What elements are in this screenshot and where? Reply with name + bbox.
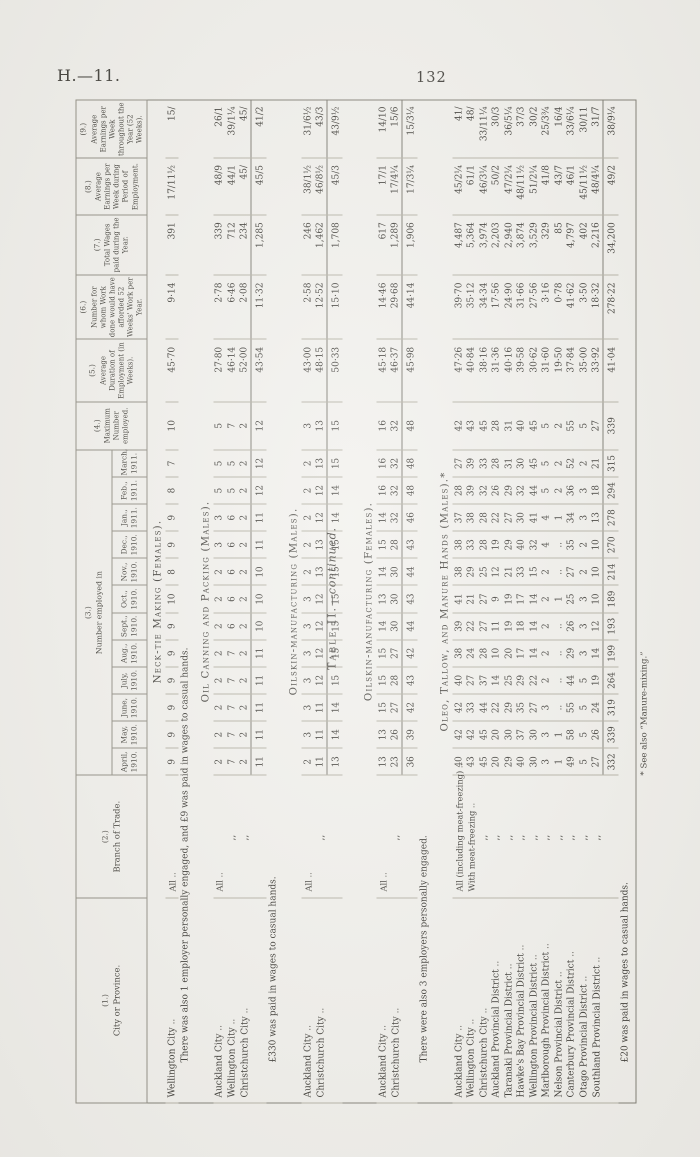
section-note: £20 was paid in wages to casual hands. <box>619 100 637 1103</box>
month-value: 193 <box>603 613 619 640</box>
avg-duration-value: 45·18 <box>377 339 390 401</box>
month-value: 2 <box>238 748 251 775</box>
month-value: 2 <box>540 558 553 585</box>
total-wages-value: 234 <box>238 215 251 275</box>
city-cell: Nelson Provincial District <box>553 898 566 1103</box>
month-value: 2 <box>238 721 251 748</box>
month-value: 3 <box>578 613 591 640</box>
avg-duration-value: 35·00 <box>578 339 591 401</box>
total-wages-value: 339 <box>213 215 226 275</box>
max-employed-value: 42 <box>453 402 466 450</box>
month-value: .. <box>553 667 566 694</box>
month-value: 21 <box>590 450 603 477</box>
avg-duration-value: 40·16 <box>503 339 516 401</box>
statistics-table: (1.) City or Province. (2.) Branch of Tr… <box>76 100 637 1104</box>
month-value: 13 <box>377 748 390 775</box>
month-value: 34 <box>565 504 578 531</box>
month-name: March, <box>119 451 129 475</box>
month-value: 2 <box>213 586 226 613</box>
earnings-period-value: 17/4¼ <box>389 158 402 214</box>
month-value: 3 <box>213 504 226 531</box>
branch-cell: ,, <box>490 775 503 898</box>
month-value: 19 <box>503 613 516 640</box>
earnings-year-value: 16/4 <box>553 100 566 158</box>
note-row: There was also 1 employer personally eng… <box>178 100 195 1103</box>
total-wages-value: 5,364 <box>465 215 478 275</box>
header-max-number: (4.) <box>92 403 102 448</box>
branch-cell: All <box>213 775 226 898</box>
month-value: 2 <box>540 586 553 613</box>
month-value: 33 <box>465 694 478 721</box>
earnings-year-value: 33/6¼ <box>565 100 578 158</box>
header-duration-number: (5.) <box>88 341 98 400</box>
month-year: 1910. <box>130 668 140 692</box>
total-wages-value: 1,906 <box>402 215 418 275</box>
month-value: 10 <box>251 613 267 640</box>
month-value: 2 <box>238 613 251 640</box>
weeks-work-number-value: 44·14 <box>402 275 418 339</box>
month-value: 29 <box>503 694 516 721</box>
month-value: 3 <box>302 613 315 640</box>
header-branch-number: (2.) <box>100 777 110 897</box>
month-value: 38 <box>465 504 478 531</box>
earnings-year-value: 30/2 <box>528 100 541 158</box>
table-title-main: Table II. <box>326 606 339 670</box>
month-value: 10 <box>251 586 267 613</box>
header-earnings-year-label: Average Earnings per Week throughout the… <box>90 102 145 157</box>
month-value: 3 <box>578 504 591 531</box>
month-value: 2 <box>540 667 553 694</box>
avg-duration-value: 27·80 <box>213 339 226 401</box>
month-value: .. <box>553 694 566 721</box>
month-value: 44 <box>402 558 418 585</box>
month-value: 2 <box>302 504 315 531</box>
max-employed-value: 40 <box>515 402 528 450</box>
month-value: 18 <box>515 613 528 640</box>
month-value: 27 <box>528 694 541 721</box>
weeks-work-number-value: 11·32 <box>251 275 267 339</box>
earnings-year-value: 38/9¼ <box>603 100 619 158</box>
avg-duration-value: 30·62 <box>528 339 541 401</box>
month-value: 29 <box>565 640 578 667</box>
note-row: £20 was paid in wages to casual hands. <box>619 100 637 1103</box>
header-city-number: (1.) <box>100 899 110 1101</box>
header-city-or-province: (1.) City or Province. <box>76 898 147 1103</box>
city-cell: Christchurch City <box>389 898 402 1103</box>
month-value: 2 <box>238 531 251 558</box>
branch-cell: ,, <box>389 775 402 898</box>
earnings-year-value: 14/10 <box>377 100 390 158</box>
month-name: Nov., <box>119 560 129 584</box>
month-value: .. <box>553 613 566 640</box>
totals-branch-cell <box>603 775 619 898</box>
branch-cell: ,, <box>540 775 553 898</box>
avg-duration-value: 41·04 <box>603 339 619 401</box>
table-row: Christchurch City,,232627282730303028323… <box>389 100 402 1103</box>
header-max-label: Maximum Number employed. <box>104 403 131 448</box>
month-value: 29 <box>503 531 516 558</box>
header-52weeks-number: (6.) <box>79 277 89 338</box>
month-value: 30 <box>528 721 541 748</box>
month-value: 199 <box>603 640 619 667</box>
earnings-period-value: 50/2 <box>490 158 503 214</box>
earnings-period-value: 51/2¼ <box>528 158 541 214</box>
max-employed-value: 16 <box>377 402 390 450</box>
month-value: 10 <box>590 531 603 558</box>
month-value: 9 <box>166 613 179 640</box>
month-value: 27 <box>478 586 491 613</box>
table-row: Taranaki Provincial District,,2930292520… <box>503 100 516 1103</box>
month-value: 29 <box>515 667 528 694</box>
month-value: 2 <box>238 558 251 585</box>
month-value: 40 <box>515 531 528 558</box>
weeks-work-number-value: 2·58 <box>302 275 315 339</box>
month-value: 4 <box>540 531 553 558</box>
section-note: £330 was paid in wages to casual hands. <box>267 100 284 1103</box>
totals-row: 3323393192641991931892142702782943153394… <box>603 100 619 1103</box>
branch-cell: With meat-freezing <box>465 775 478 898</box>
month-value: 315 <box>603 450 619 477</box>
month-value: 27 <box>478 613 491 640</box>
avg-duration-value: 47·26 <box>453 339 466 401</box>
earnings-period-value: 44/1 <box>226 158 239 214</box>
earnings-period-value: 45/2¼ <box>453 158 466 214</box>
table-row: Nelson Provincial District,,11........1.… <box>553 100 566 1103</box>
earnings-year-value: 36/5¼ <box>503 100 516 158</box>
table-row: Southland Provincial District,,272624191… <box>590 100 603 1103</box>
month-value: 10 <box>590 558 603 585</box>
month-value: 2 <box>213 667 226 694</box>
earnings-year-value: 33/11¼ <box>478 100 491 158</box>
month-value: 30 <box>389 558 402 585</box>
total-wages-value: 1,289 <box>389 215 402 275</box>
earnings-period-value: 48/4¼ <box>590 158 603 214</box>
city-cell: Christchurch City <box>478 898 491 1103</box>
month-value: 45 <box>478 721 491 748</box>
month-value: 45 <box>528 450 541 477</box>
month-value: 1 <box>553 748 566 775</box>
month-value: 43 <box>402 586 418 613</box>
month-value: 3 <box>540 721 553 748</box>
month-value: 21 <box>503 558 516 585</box>
max-employed-value: 339 <box>603 402 619 450</box>
month-value: 29 <box>503 748 516 775</box>
month-value: 28 <box>478 531 491 558</box>
month-value: 13 <box>377 586 390 613</box>
branch-cell: ,, <box>528 775 541 898</box>
section-title: Oilskin-manufacturing (Females). <box>359 100 377 1103</box>
month-value: 32 <box>389 450 402 477</box>
earnings-year-value: 31/7 <box>590 100 603 158</box>
avg-duration-value: 37·84 <box>565 339 578 401</box>
month-value: 20 <box>503 640 516 667</box>
max-employed-value: 48 <box>402 402 418 450</box>
month-value: 38 <box>453 640 466 667</box>
header-52weeks-label: Number for whom Work done would have aff… <box>90 277 145 338</box>
month-value: 39 <box>465 477 478 504</box>
header-duration-label: Average Duration of Employment (in Weeks… <box>99 341 135 400</box>
branch-cell: All <box>166 775 179 898</box>
month-header: Sept.,1910. <box>112 613 147 640</box>
earnings-year-value: 41/2 <box>251 100 267 158</box>
weeks-work-number-value: 18·32 <box>590 275 603 339</box>
month-value: 3 <box>302 667 315 694</box>
avg-duration-value: 31·36 <box>490 339 503 401</box>
earnings-year-value: 39/1¼ <box>226 100 239 158</box>
month-value: 270 <box>603 531 619 558</box>
month-value: 294 <box>603 477 619 504</box>
month-value: 44 <box>478 694 491 721</box>
month-value: 30 <box>503 721 516 748</box>
table-row: Otago Provincial District,,5555333223325… <box>578 100 591 1103</box>
month-value: 3 <box>578 586 591 613</box>
section-heading-row: Oleo, Tallow, and Manure Hands (Males).* <box>435 100 453 1103</box>
month-value: 332 <box>603 748 619 775</box>
month-value: 3 <box>302 640 315 667</box>
month-value: 19 <box>590 667 603 694</box>
max-employed-value: 2 <box>553 402 566 450</box>
month-value: 9 <box>166 531 179 558</box>
avg-duration-value: 45·70 <box>166 339 179 401</box>
month-value: 5 <box>213 450 226 477</box>
month-value: 27 <box>389 694 402 721</box>
max-employed-value: 5 <box>578 402 591 450</box>
month-value: 13 <box>377 721 390 748</box>
total-wages-value: 4,797 <box>565 215 578 275</box>
month-name: July, <box>119 668 129 692</box>
total-wages-value: 34,200 <box>603 215 619 275</box>
section-title: Neck-tie Making (Females). <box>147 100 166 1103</box>
month-value: 2 <box>213 613 226 640</box>
month-value: 2 <box>578 531 591 558</box>
table-row: Auckland CityAll131315151514131415141616… <box>377 100 390 1103</box>
month-value: 44 <box>565 667 578 694</box>
table-row: Marlborough Provincial District,,3332222… <box>540 100 553 1103</box>
earnings-year-value: 30/3 <box>490 100 503 158</box>
month-value: 11 <box>251 721 267 748</box>
month-value: 12 <box>251 477 267 504</box>
max-employed-value: 55 <box>565 402 578 450</box>
branch-cell: All (including meat-freezing) <box>453 775 466 898</box>
month-year: 1911. <box>130 479 140 503</box>
month-value: 27 <box>465 667 478 694</box>
weeks-work-number-value: 41·62 <box>565 275 578 339</box>
header-52-weeks-equivalent: (6.) Number for whom Work done would hav… <box>76 275 147 339</box>
section-note: There was also 1 employer personally eng… <box>178 100 195 1103</box>
table-row: Christchurch City,,222222222222252·002·0… <box>238 100 251 1103</box>
table-row: Christchurch City,,454544372827272528283… <box>478 100 491 1103</box>
month-value: 22 <box>490 504 503 531</box>
earnings-period-value: 38/1½ <box>302 158 315 214</box>
header-city-label: City or Province. <box>112 899 123 1101</box>
avg-duration-value: 31·60 <box>540 339 553 401</box>
table-row: Auckland Provincial District,,2020221410… <box>490 100 503 1103</box>
weeks-work-number-value: 14·46 <box>377 275 390 339</box>
branch-cell: All <box>377 775 390 898</box>
page-number: 132 <box>416 70 447 86</box>
month-value: 37 <box>453 504 466 531</box>
header-group-number: (3.) <box>83 451 93 774</box>
month-value: 14 <box>377 613 390 640</box>
total-wages-value: 3,529 <box>528 215 541 275</box>
month-name: Feb., <box>119 479 129 503</box>
weeks-work-number-value: 17·56 <box>490 275 503 339</box>
section-heading-row: Oilskin-manufacturing (Females). <box>359 100 377 1103</box>
month-value: 15 <box>377 531 390 558</box>
totals-row: 3639424342444344434648484845·9844·141,90… <box>402 100 418 1103</box>
month-value: 15 <box>528 558 541 585</box>
month-value: 2 <box>302 531 315 558</box>
total-wages-value: 3,974 <box>478 215 491 275</box>
month-value: 35 <box>515 694 528 721</box>
earnings-period-value: 45/11½ <box>578 158 591 214</box>
month-header: May,1910. <box>112 721 147 748</box>
month-value: 44 <box>528 477 541 504</box>
month-value: 10 <box>490 640 503 667</box>
month-value: 36 <box>565 477 578 504</box>
earnings-year-value: 15/6 <box>389 100 402 158</box>
header-total-wages: (7.) Total Wages paid during the Year. <box>76 215 147 275</box>
month-value: 2 <box>553 450 566 477</box>
header-branch-of-trade: (2.) Branch of Trade. <box>76 775 147 898</box>
city-cell: Auckland City <box>302 898 315 1103</box>
earnings-period-value: 47/2¼ <box>503 158 516 214</box>
month-value: 28 <box>389 667 402 694</box>
max-employed-value: 5 <box>213 402 226 450</box>
month-header: Oct.,1910. <box>112 586 147 613</box>
month-value: 2 <box>238 450 251 477</box>
max-employed-value: 45 <box>528 402 541 450</box>
table-row: Wellington City,,777776666655746·146·467… <box>226 100 239 1103</box>
month-value: .. <box>553 531 566 558</box>
month-value: 43 <box>402 667 418 694</box>
totals-city-cell <box>251 898 267 1103</box>
month-value: 2 <box>553 477 566 504</box>
total-wages-value: 329 <box>540 215 553 275</box>
month-value: 24 <box>465 640 478 667</box>
weeks-work-number-value: 3·16 <box>540 275 553 339</box>
month-value: 4 <box>540 504 553 531</box>
month-value: 9 <box>490 586 503 613</box>
month-year: 1910. <box>130 533 140 557</box>
month-value: 5 <box>226 477 239 504</box>
total-wages-value: 402 <box>578 215 591 275</box>
month-value: 38 <box>453 531 466 558</box>
month-value: 2 <box>302 477 315 504</box>
month-value: 9 <box>166 721 179 748</box>
city-cell: Wellington City <box>465 898 478 1103</box>
branch-cell: ,, <box>565 775 578 898</box>
month-value: 42 <box>453 721 466 748</box>
month-value: 27 <box>453 450 466 477</box>
month-value: 48 <box>402 477 418 504</box>
month-name: Jan., <box>119 506 129 530</box>
month-name: Oct., <box>119 587 129 611</box>
avg-duration-value: 52·00 <box>238 339 251 401</box>
month-header: June,1910. <box>112 694 147 721</box>
month-value: 7 <box>166 450 179 477</box>
month-value: 14 <box>528 586 541 613</box>
month-value: 12 <box>590 613 603 640</box>
month-value: 30 <box>515 450 528 477</box>
earnings-period-value: 17/3¼ <box>402 158 418 214</box>
month-value: 2 <box>578 450 591 477</box>
earnings-year-value: 37/3 <box>515 100 528 158</box>
month-value: 6 <box>226 504 239 531</box>
month-value: .. <box>553 640 566 667</box>
month-value: 2 <box>213 640 226 667</box>
month-value: 25 <box>565 586 578 613</box>
earnings-year-value: 15/ <box>166 100 179 158</box>
month-value: 2 <box>238 504 251 531</box>
month-value: 2 <box>213 558 226 585</box>
month-value: 32 <box>389 477 402 504</box>
note-row: £330 was paid in wages to casual hands. <box>267 100 284 1103</box>
branch-cell: ,, <box>553 775 566 898</box>
table-row: Auckland CityAll233333322222343·002·5824… <box>302 100 315 1103</box>
month-value: 28 <box>389 531 402 558</box>
header-group-label: Number employed in <box>95 451 105 774</box>
weeks-work-number-value: 2·78 <box>213 275 226 339</box>
month-value: 3 <box>213 531 226 558</box>
city-cell: Hawke's Bay Provincial District <box>515 898 528 1103</box>
month-value: 5 <box>213 477 226 504</box>
month-value: 16 <box>377 477 390 504</box>
month-value: 22 <box>528 667 541 694</box>
month-value: 2 <box>540 640 553 667</box>
month-value: 2 <box>578 558 591 585</box>
month-value: 25 <box>478 558 491 585</box>
earnings-year-value: 45/ <box>238 100 251 158</box>
earnings-period-value: 61/1 <box>465 158 478 214</box>
weeks-work-number-value: 35·12 <box>465 275 478 339</box>
header-number-employed-group: (3.) Number employed in <box>76 450 112 776</box>
weeks-work-number-value: 39·70 <box>453 275 466 339</box>
header-wages-label: Total Wages paid during the Year. <box>104 216 131 273</box>
avg-duration-value: 46·37 <box>389 339 402 401</box>
month-value: 7 <box>226 748 239 775</box>
month-value: 6 <box>226 558 239 585</box>
month-value: 5 <box>578 748 591 775</box>
earnings-period-value: 17/11½ <box>166 158 179 214</box>
earnings-period-value: 45/ <box>238 158 251 214</box>
month-value: 42 <box>465 721 478 748</box>
month-value: 5 <box>578 694 591 721</box>
month-value: 41 <box>528 504 541 531</box>
earnings-period-value: 17/1 <box>377 158 390 214</box>
month-value: 1 <box>553 721 566 748</box>
month-value: 189 <box>603 586 619 613</box>
month-value: 3 <box>578 640 591 667</box>
max-employed-value: 7 <box>226 402 239 450</box>
month-value: 33 <box>515 558 528 585</box>
month-value: 39 <box>453 613 466 640</box>
month-value: 7 <box>226 667 239 694</box>
max-employed-value: 10 <box>166 402 179 450</box>
month-value: 20 <box>490 748 503 775</box>
max-employed-value: 32 <box>389 402 402 450</box>
month-value: 11 <box>251 694 267 721</box>
max-employed-value: 5 <box>540 402 553 450</box>
weeks-work-number-value: 27·56 <box>528 275 541 339</box>
earnings-year-value: 48/ <box>465 100 478 158</box>
table-row: Auckland CityAll222222223355527·802·7833… <box>213 100 226 1103</box>
header-maximum-number: (4.) Maximum Number employed. <box>76 402 147 450</box>
month-value: 43 <box>465 748 478 775</box>
month-header: April,1910. <box>112 748 147 775</box>
month-value: 39 <box>465 450 478 477</box>
month-value: 40 <box>515 748 528 775</box>
